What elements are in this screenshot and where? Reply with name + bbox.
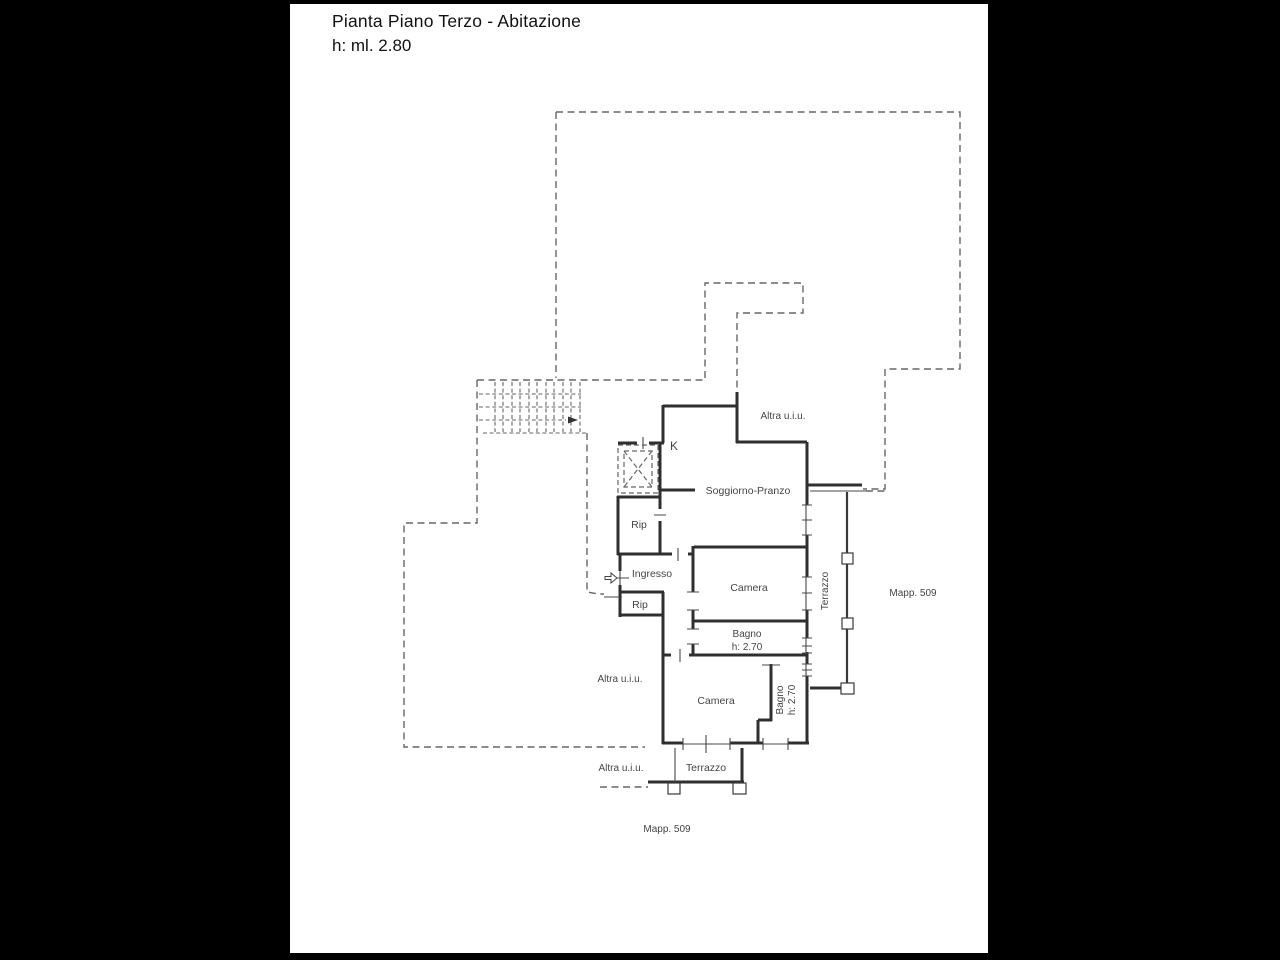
entrance-arrow-icon (605, 573, 617, 583)
label-bath2-height: h: 2.70 (787, 684, 798, 715)
label-mapp-right: Mapp. 509 (889, 588, 937, 599)
floorplan-drawing: Altra u.i.u. K Soggiorno-Pranzo Rip Ingr… (0, 0, 1280, 960)
stairs-direction-arrow-icon (568, 417, 578, 424)
label-terrace-right: Terrazzo (820, 571, 831, 610)
elevator-shaft-dashed (618, 445, 658, 493)
label-entry: Ingresso (632, 568, 672, 580)
label-living: Soggiorno-Pranzo (706, 485, 791, 497)
label-altra-uiu-top: Altra u.i.u. (760, 411, 805, 422)
label-bath2-name: Bagno (775, 685, 786, 714)
label-bath1-height: h: 2.70 (732, 642, 763, 653)
dashed-property-boundary (404, 112, 960, 787)
label-terrace-bottom: Terrazzo (686, 762, 726, 774)
label-altra-uiu-bottom: Altra u.i.u. (598, 763, 643, 774)
label-mapp-bottom: Mapp. 509 (643, 824, 691, 835)
label-storage1: Rip (631, 519, 647, 531)
label-bedroom1: Camera (730, 582, 768, 594)
label-bedroom2: Camera (697, 695, 735, 707)
scanned-floorplan-page: Pianta Piano Terzo - Abitazione h: ml. 2… (0, 0, 1280, 960)
label-bath1-name: Bagno (733, 629, 762, 640)
label-altra-uiu-middle: Altra u.i.u. (597, 674, 642, 685)
stairs-dashed (479, 382, 587, 433)
label-kitchen: K (670, 439, 678, 453)
label-storage2: Rip (632, 599, 648, 611)
